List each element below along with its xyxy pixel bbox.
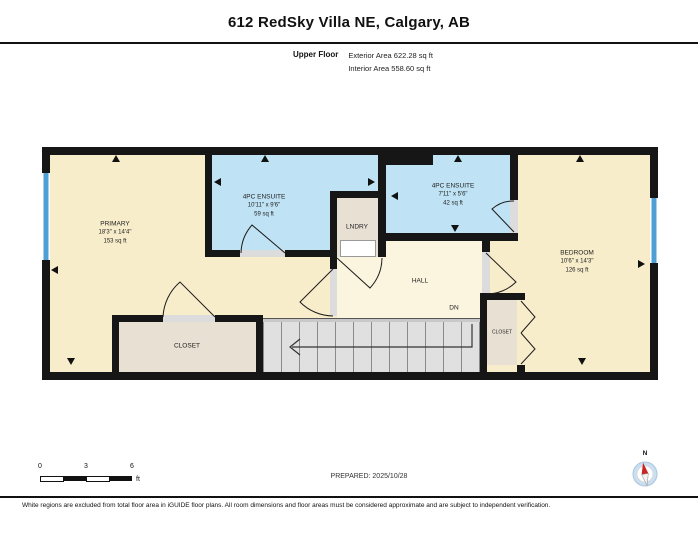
scale-segment xyxy=(40,476,64,482)
wall-segment xyxy=(42,372,658,380)
door-threshold xyxy=(510,200,518,233)
wall-segment xyxy=(650,147,658,380)
floor-summary: Upper Floor Exterior Area 622.28 sq ft I… xyxy=(14,49,698,75)
scale-tick-label: 0 xyxy=(38,463,42,470)
measurement-arrow xyxy=(454,155,462,162)
prepared-date: PREPARED: 2025/10/28 xyxy=(249,473,489,480)
measurement-arrow xyxy=(51,266,58,274)
door-threshold xyxy=(330,269,337,316)
stairs-dn-label: DN xyxy=(449,303,458,312)
room-hall-fill xyxy=(337,257,386,322)
wall-segment xyxy=(510,155,518,200)
exterior-area: Exterior Area 622.28 sq ft xyxy=(348,49,433,62)
wall-segment xyxy=(517,365,525,372)
wall-segment xyxy=(482,241,490,252)
room-area: 153 sq ft xyxy=(99,238,132,247)
compass-icon: N xyxy=(627,450,663,492)
floor-label: Upper Floor xyxy=(293,49,338,75)
measurement-arrow xyxy=(576,155,584,162)
area-summary: Exterior Area 622.28 sq ft Interior Area… xyxy=(348,49,433,75)
wall-segment xyxy=(330,257,337,269)
measurement-arrow xyxy=(112,155,120,162)
room-area: 42 sq ft xyxy=(432,200,475,209)
room-area: 126 sq ft xyxy=(560,267,594,276)
room-label-closet-right: CLOSET xyxy=(492,329,512,336)
floorplan-canvas: PRIMARY 18'3" x 14'4" 153 sq ft 4PC ENSU… xyxy=(40,145,660,381)
footer-divider xyxy=(0,496,698,498)
wall-segment xyxy=(378,155,386,257)
room-dimensions: 18'3" x 14'4" xyxy=(99,229,132,238)
room-label-hall: HALL xyxy=(412,276,428,285)
stairs xyxy=(263,322,481,372)
wall-segment xyxy=(386,153,433,165)
measurement-arrow xyxy=(451,225,459,232)
scale-segment xyxy=(109,476,132,481)
room-label-ensuite-left: 4PC ENSUITE 10'11" x 9'6" 59 sq ft xyxy=(243,193,286,220)
scale-segment xyxy=(86,476,110,482)
wall-segment xyxy=(42,147,658,155)
room-name: 4PC ENSUITE xyxy=(243,193,286,202)
scale-bar: 0 3 6 ft xyxy=(38,463,168,485)
title-divider xyxy=(0,42,698,44)
measurement-arrow xyxy=(391,192,398,200)
wall-segment xyxy=(480,300,487,372)
measurement-arrow xyxy=(638,260,645,268)
page-title: 612 RedSky Villa NE, Calgary, AB xyxy=(0,14,698,31)
door-threshold xyxy=(240,250,285,257)
window xyxy=(650,198,658,263)
scale-unit: ft xyxy=(136,476,140,483)
measurement-arrow xyxy=(67,358,75,365)
wall-segment xyxy=(205,250,240,257)
room-dimensions: 7'11" x 5'6" xyxy=(432,191,475,200)
room-label-laundry: LNDRY xyxy=(346,222,368,231)
laundry-appliance xyxy=(340,240,376,257)
wall-segment xyxy=(386,233,518,241)
door-threshold xyxy=(163,315,215,322)
floorplan-page: 612 RedSky Villa NE, Calgary, AB Upper F… xyxy=(0,0,698,540)
room-dimensions: 10'6" x 14'3" xyxy=(560,258,594,267)
disclaimer-text: White regions are excluded from total fl… xyxy=(22,502,682,509)
wall-segment xyxy=(112,315,163,322)
measurement-arrow xyxy=(368,178,375,186)
room-label-bedroom: BEDROOM 10'6" x 14'3" 126 sq ft xyxy=(560,249,594,276)
room-label-closet-left: CLOSET xyxy=(174,341,200,350)
room-name: 4PC ENSUITE xyxy=(432,182,475,191)
scale-segment xyxy=(63,476,86,481)
room-label-primary: PRIMARY 18'3" x 14'4" 153 sq ft xyxy=(99,220,132,247)
wall-segment xyxy=(205,155,212,257)
interior-area: Interior Area 558.60 sq ft xyxy=(348,62,433,75)
compass-north-label: N xyxy=(627,450,663,457)
room-label-ensuite-right: 4PC ENSUITE 7'11" x 5'6" 42 sq ft xyxy=(432,182,475,209)
room-dimensions: 10'11" x 9'6" xyxy=(243,202,286,211)
room-name: PRIMARY xyxy=(99,220,132,229)
wall-segment xyxy=(256,315,263,372)
wall-segment xyxy=(112,315,119,372)
room-name: BEDROOM xyxy=(560,249,594,258)
room-area: 59 sq ft xyxy=(243,211,286,220)
measurement-arrow xyxy=(578,358,586,365)
scale-tick-label: 3 xyxy=(84,463,88,470)
wall-segment xyxy=(330,191,378,198)
measurement-arrow xyxy=(214,178,221,186)
wall-segment xyxy=(330,191,337,257)
window xyxy=(42,173,50,260)
room-hall-fill xyxy=(386,241,482,322)
scale-tick-label: 6 xyxy=(130,463,134,470)
compass-rose xyxy=(627,457,663,491)
measurement-arrow xyxy=(261,155,269,162)
wall-segment xyxy=(480,293,525,300)
door-threshold xyxy=(482,252,490,293)
